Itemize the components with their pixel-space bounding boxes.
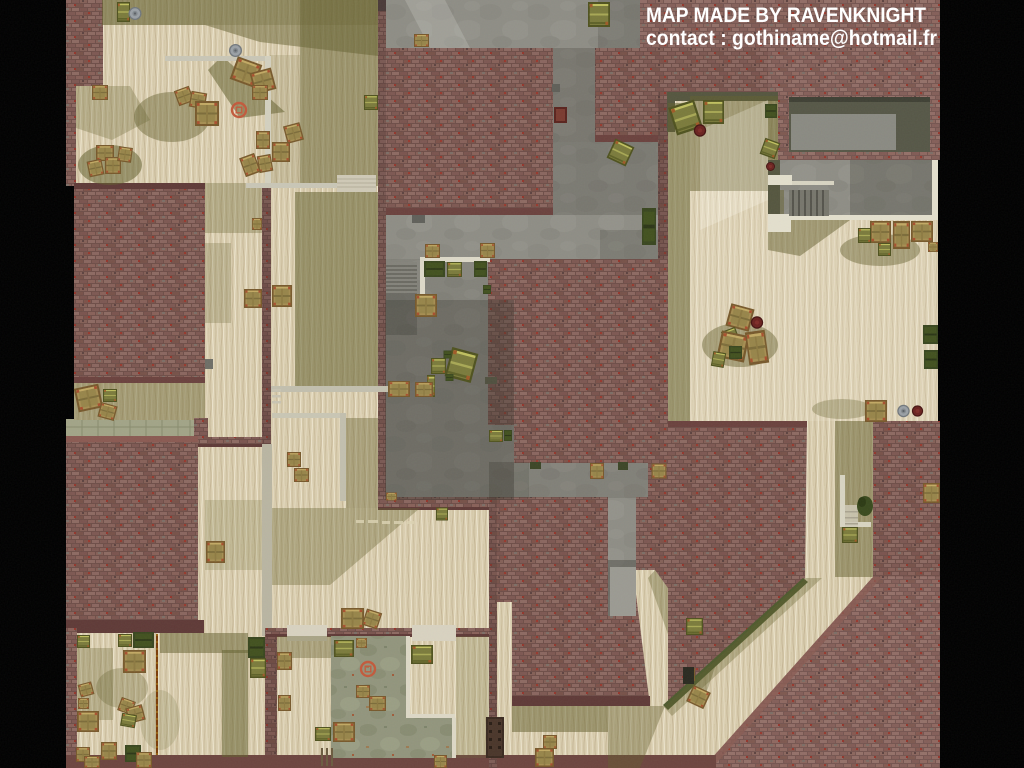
svg-text:MAP MADE BY RAVENKNIGHT: MAP MADE BY RAVENKNIGHT [646,4,926,27]
svg-text:contact : gothiname@hotmail.fr: contact : gothiname@hotmail.fr [646,27,937,50]
